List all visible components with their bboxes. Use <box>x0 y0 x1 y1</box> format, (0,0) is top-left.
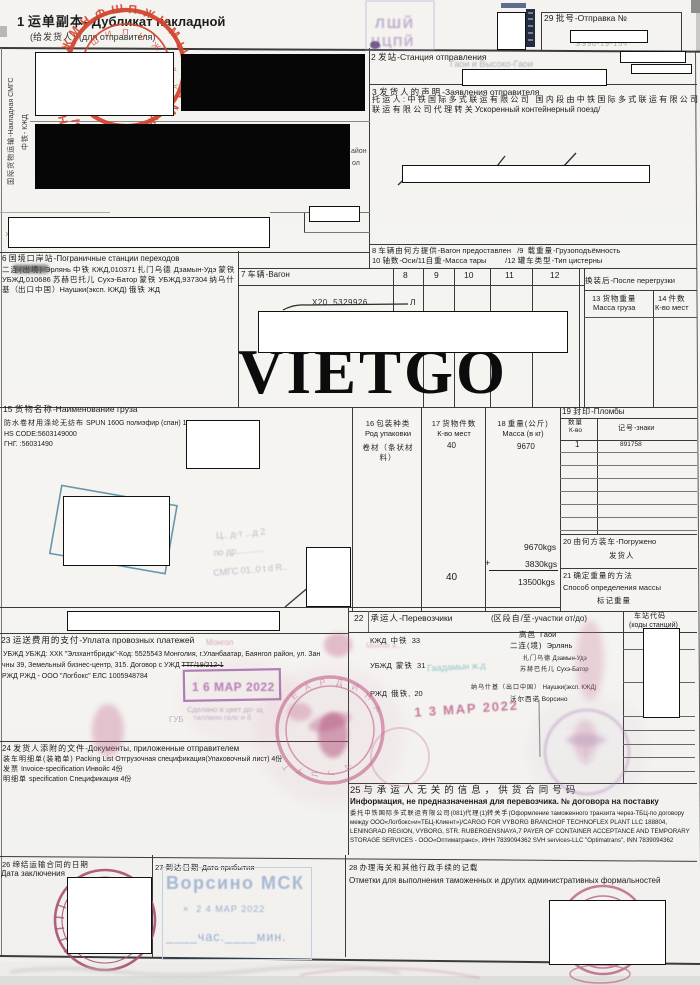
svg-text:Гаадамын ж.д: Гаадамын ж.д <box>427 660 487 673</box>
svg-text:по др...........: по др........... <box>213 544 264 558</box>
svg-text:ЛШЙ: ЛШЙ <box>375 14 415 31</box>
svg-text:ГУБ: ГУБ <box>169 715 184 724</box>
svg-text:Монгол: Монгол <box>206 638 234 647</box>
svg-text:М: М <box>66 23 83 40</box>
svg-text:Ш: Ш <box>110 1 124 17</box>
svg-text:Н: Н <box>137 31 147 43</box>
svg-text:Н: Н <box>78 13 93 29</box>
svg-text:П: П <box>122 27 129 37</box>
svg-text:Ш: Ш <box>88 35 100 48</box>
svg-text:И: И <box>104 29 113 40</box>
svg-text:П: П <box>128 2 138 17</box>
svg-text:Ц.. д-т ...д 2: Ц.. д-т ...д 2 <box>216 526 266 540</box>
svg-text:СМГС 01..0 t d R..: СМГС 01..0 t d R.. <box>213 562 287 578</box>
svg-text:1 3 МАР 2022: 1 3 МАР 2022 <box>414 698 520 720</box>
svg-text:Монгол ж...: Монгол ж... <box>366 643 402 650</box>
